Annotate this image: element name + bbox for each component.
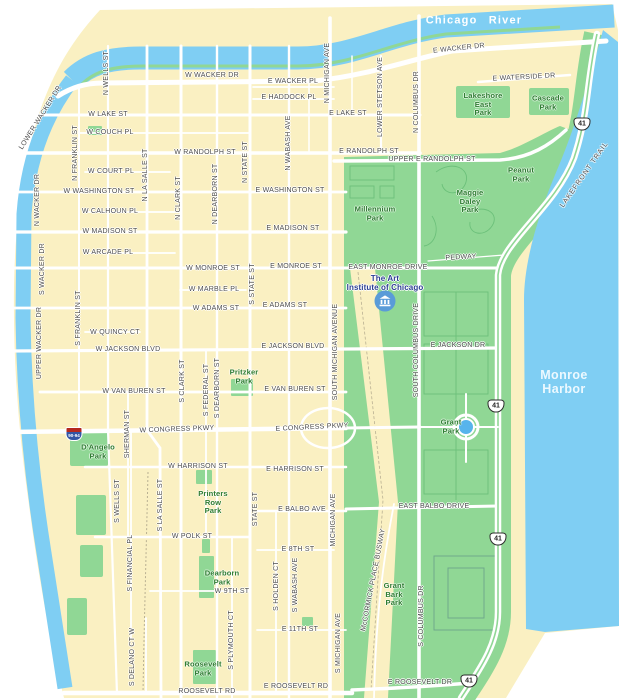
us-route-shield: 41 bbox=[490, 533, 507, 546]
interstate-shield: 90-94 bbox=[66, 427, 83, 441]
us-route-shield: 41 bbox=[461, 675, 478, 688]
us-route-shield: 41 bbox=[574, 118, 591, 131]
map-canvas[interactable]: Chicago RiverMonroe HarborW WACKER DRE W… bbox=[0, 0, 622, 700]
museum-icon[interactable] bbox=[375, 291, 396, 312]
us-route-shield: 41 bbox=[488, 400, 505, 413]
map-overlays-layer: 4141414190-94 bbox=[0, 0, 622, 700]
